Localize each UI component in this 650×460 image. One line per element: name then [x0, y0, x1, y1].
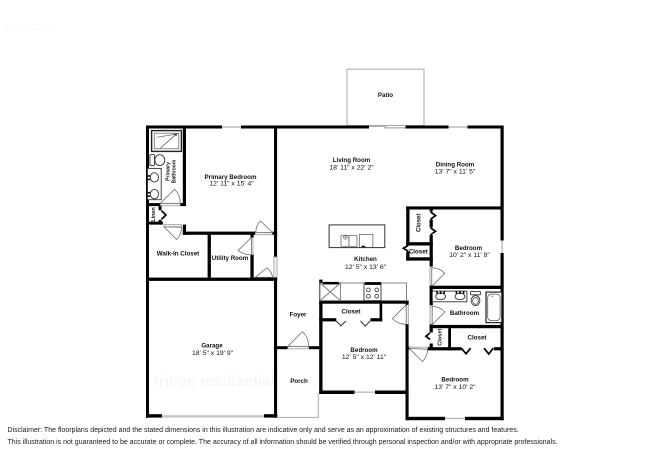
svg-text:Closet: Closet: [409, 248, 428, 255]
svg-text:Bathroom: Bathroom: [450, 310, 480, 317]
svg-text:tricon residential: tricon residential: [14, 26, 49, 31]
svg-text:13' 7" x 11' 5": 13' 7" x 11' 5": [435, 169, 476, 176]
svg-text:tricon residential: tricon residential: [154, 373, 275, 390]
svg-text:18' 5" x 19' 9": 18' 5" x 19' 9": [192, 350, 234, 357]
svg-text:Closet: Closet: [417, 214, 423, 232]
svg-text:Foyer: Foyer: [290, 312, 307, 319]
svg-text:18' 11" x 22' 2": 18' 11" x 22' 2": [329, 164, 374, 171]
svg-text:Bathroom: Bathroom: [172, 159, 178, 183]
svg-text:Closet: Closet: [342, 309, 361, 316]
svg-text:Kitchen: Kitchen: [354, 256, 377, 263]
svg-text:Dining Room: Dining Room: [436, 161, 475, 168]
svg-text:Bedroom: Bedroom: [455, 245, 483, 252]
svg-text:13' 7" x 10' 2": 13' 7" x 10' 2": [434, 384, 476, 391]
svg-text:This illustration is not guara: This illustration is not guaranteed to b…: [8, 439, 558, 446]
svg-text:12' 11" x 15' 4": 12' 11" x 15' 4": [209, 181, 254, 188]
svg-text:Utility Room: Utility Room: [212, 255, 249, 262]
svg-text:Garage: Garage: [201, 342, 223, 349]
svg-text:Disclaimer: The floorplans dep: Disclaimer: The floorplans depicted and …: [8, 427, 519, 434]
svg-text:Living Room: Living Room: [333, 157, 371, 164]
svg-text:Closet: Closet: [468, 335, 487, 342]
svg-text:Walk-In Closet: Walk-In Closet: [157, 250, 199, 257]
svg-text:Porch: Porch: [290, 378, 308, 385]
svg-text:Patio: Patio: [378, 92, 393, 99]
svg-text:12' 5" x 13' 6": 12' 5" x 13' 6": [345, 264, 387, 271]
svg-text:Closet: Closet: [438, 329, 444, 346]
svg-text:Bedroom: Bedroom: [441, 377, 469, 384]
svg-text:12' 5" x 12' 11": 12' 5" x 12' 11": [342, 354, 387, 361]
svg-text:10' 2" x 11' 8": 10' 2" x 11' 8": [449, 252, 490, 259]
svg-text:Linen: Linen: [151, 207, 157, 221]
